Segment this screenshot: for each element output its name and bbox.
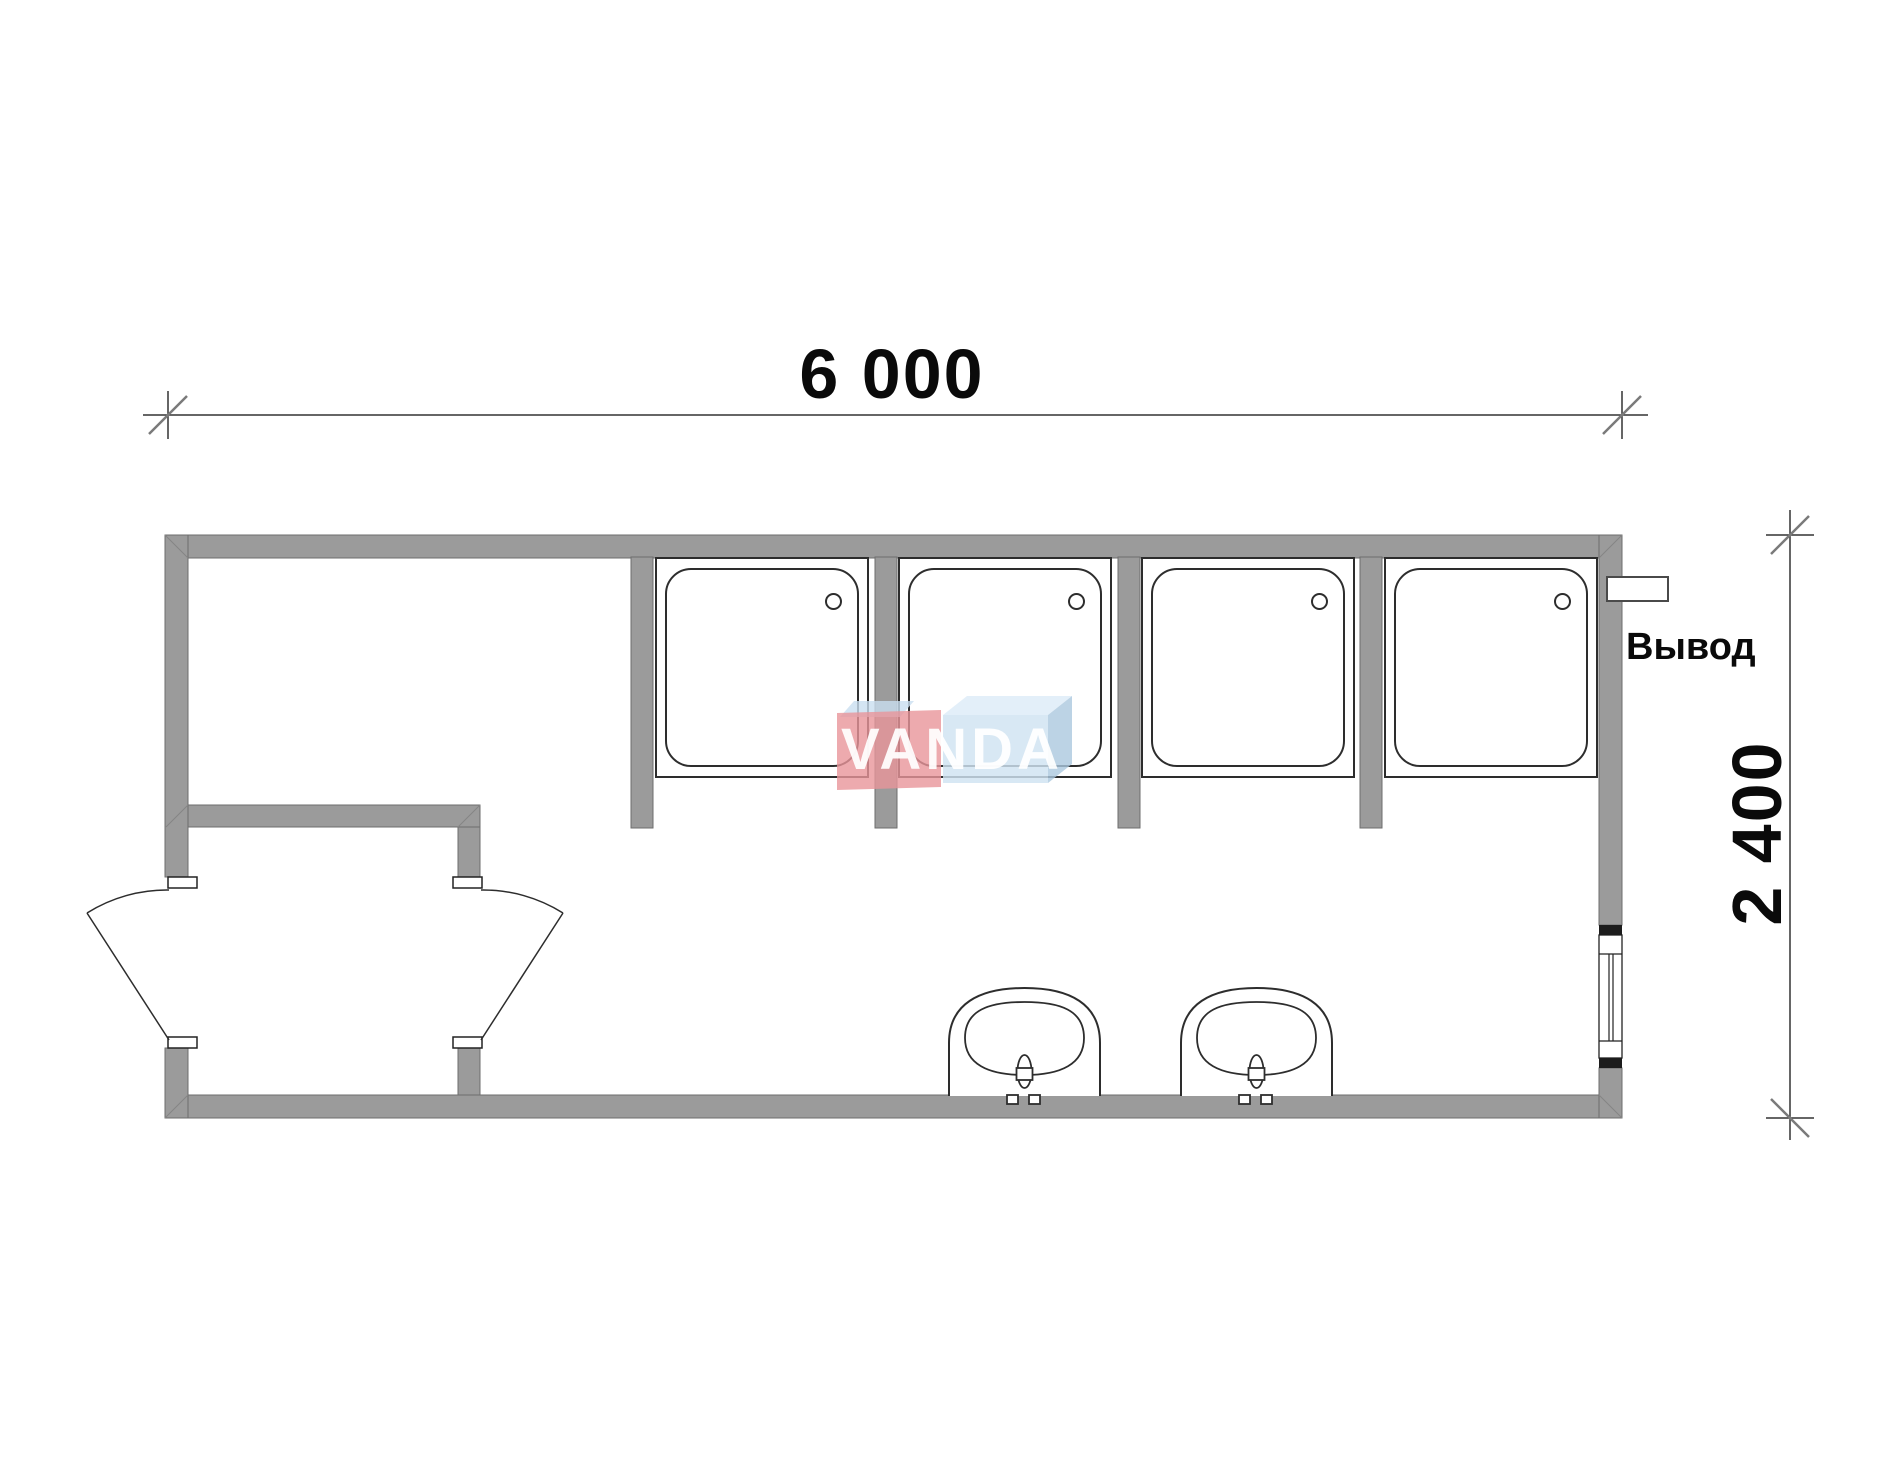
faucet-base	[1017, 1068, 1033, 1080]
shower-drain-icon	[1555, 594, 1570, 609]
wall-top	[165, 535, 1622, 558]
washbasins	[949, 988, 1332, 1104]
washbasin-2	[1181, 988, 1332, 1104]
door-left-exterior	[87, 890, 169, 1040]
door-jamb	[453, 1037, 482, 1048]
washbasin-1	[949, 988, 1100, 1104]
window	[1599, 925, 1622, 1068]
door-swing-arc	[481, 890, 563, 913]
wall-bottom	[165, 1095, 1622, 1118]
shower-drain-icon	[1312, 594, 1327, 609]
door-leaf	[87, 913, 169, 1040]
wall-right-lower	[1599, 1068, 1622, 1118]
partition-4	[1360, 557, 1382, 828]
faucet-base	[1249, 1068, 1265, 1080]
dimension-width-label: 6 000	[692, 334, 1092, 414]
door-jambs	[168, 877, 482, 1048]
pipe-notch-left	[1239, 1095, 1250, 1104]
wall-vestibule-right-lower	[458, 1048, 480, 1095]
shower-stall-1	[656, 558, 868, 777]
shower-stall-3	[1142, 558, 1354, 777]
watermark-text: VANDA	[841, 717, 1063, 782]
plan-drawing: VANDA	[0, 0, 1899, 1481]
watermark-logo: VANDA	[837, 696, 1072, 790]
window-cap-top	[1599, 925, 1622, 935]
shower-stall-4	[1385, 558, 1597, 777]
partition-1	[631, 557, 653, 828]
door-jamb	[168, 1037, 197, 1048]
pipe-notch-right	[1029, 1095, 1040, 1104]
outlet-label: Вывод	[1626, 626, 1756, 669]
shower-drain-icon	[826, 594, 841, 609]
wall-vestibule-right-upper	[458, 827, 480, 877]
door-swing-arc	[87, 890, 169, 913]
door-jamb	[453, 877, 482, 888]
wall-left-lower	[165, 1048, 188, 1118]
door-jamb	[168, 877, 197, 888]
dimension-height-label: 2 400	[1717, 633, 1797, 1033]
pipe-notch-right	[1261, 1095, 1272, 1104]
floor-plan-canvas: VANDA 6 000 2 400 Вывод	[0, 0, 1899, 1481]
outlet-stub	[1607, 577, 1668, 601]
door-right-interior	[481, 890, 563, 1040]
partition-3	[1118, 557, 1140, 828]
door-leaf	[481, 913, 563, 1040]
shower-drain-icon	[1069, 594, 1084, 609]
wall-left-upper	[165, 535, 188, 877]
entrance-doors	[87, 877, 563, 1048]
window-cap-bottom	[1599, 1058, 1622, 1068]
wall-vestibule-top	[188, 805, 480, 827]
pipe-notch-left	[1007, 1095, 1018, 1104]
